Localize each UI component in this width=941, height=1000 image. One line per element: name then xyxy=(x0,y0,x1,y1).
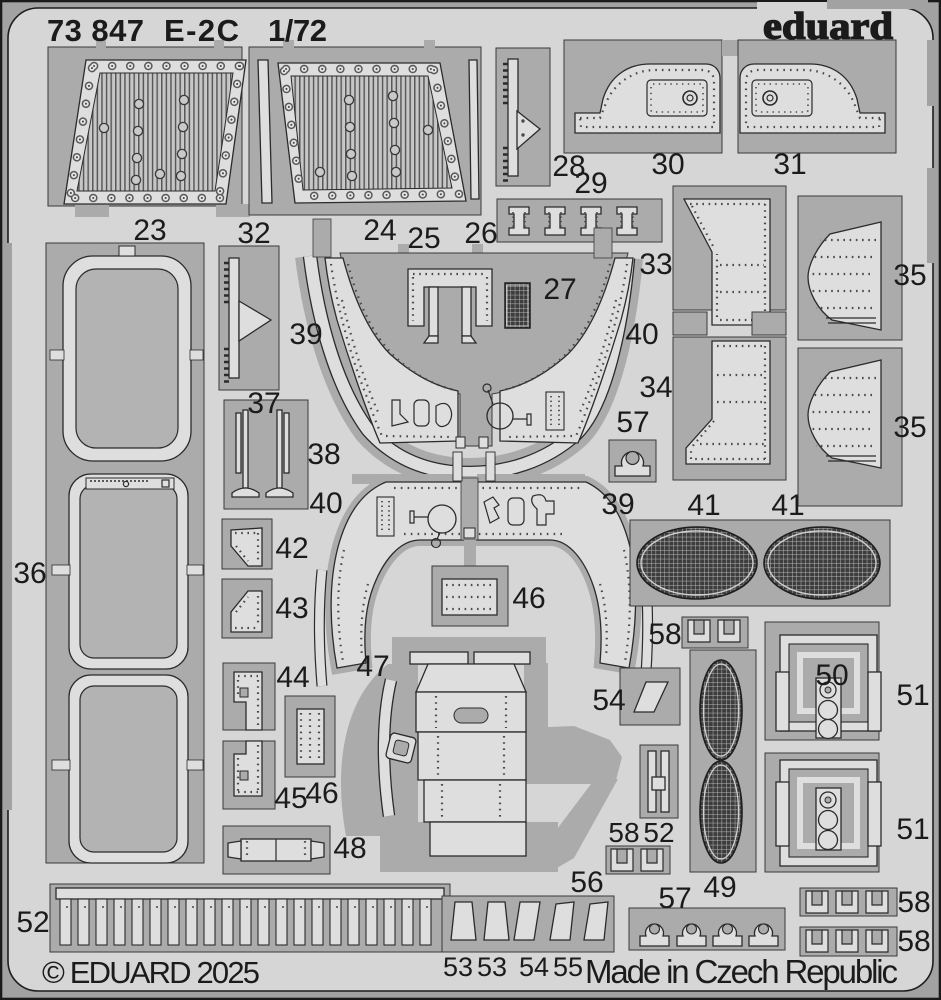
svg-text:33: 33 xyxy=(639,248,672,281)
svg-text:eduard: eduard xyxy=(763,6,893,48)
svg-text:32: 32 xyxy=(237,217,270,250)
svg-text:38: 38 xyxy=(307,438,340,471)
svg-text:56: 56 xyxy=(570,866,603,899)
svg-text:36: 36 xyxy=(13,557,46,590)
svg-text:48: 48 xyxy=(333,832,366,865)
svg-text:50: 50 xyxy=(815,659,848,692)
svg-text:42: 42 xyxy=(275,532,308,565)
svg-text:55: 55 xyxy=(553,952,583,982)
svg-text:51: 51 xyxy=(896,679,929,712)
svg-text:51: 51 xyxy=(896,813,929,846)
svg-text:52: 52 xyxy=(16,906,49,939)
svg-text:58: 58 xyxy=(897,886,930,919)
svg-text:Made in Czech Republic: Made in Czech Republic xyxy=(585,953,898,990)
svg-text:57: 57 xyxy=(658,882,691,915)
svg-text:29: 29 xyxy=(574,167,607,200)
svg-text:57: 57 xyxy=(616,406,649,439)
svg-text:58: 58 xyxy=(648,618,681,651)
svg-text:47: 47 xyxy=(356,650,389,683)
svg-text:41: 41 xyxy=(771,489,804,522)
svg-text:58: 58 xyxy=(897,925,930,958)
svg-text:26: 26 xyxy=(464,217,497,250)
svg-text:53: 53 xyxy=(477,952,507,982)
svg-text:35: 35 xyxy=(893,411,926,444)
svg-text:E-2C: E-2C xyxy=(164,13,239,48)
svg-text:35: 35 xyxy=(893,259,926,292)
svg-text:24: 24 xyxy=(363,214,396,247)
svg-text:40: 40 xyxy=(309,487,342,520)
svg-text:41: 41 xyxy=(687,489,720,522)
svg-text:49: 49 xyxy=(703,871,736,904)
svg-text:46: 46 xyxy=(305,777,338,810)
svg-text:46: 46 xyxy=(512,582,545,615)
svg-text:30: 30 xyxy=(651,148,684,181)
svg-text:54: 54 xyxy=(519,952,549,982)
svg-text:37: 37 xyxy=(247,387,280,420)
svg-text:25: 25 xyxy=(407,222,440,255)
svg-text:53: 53 xyxy=(443,952,473,982)
svg-text:52: 52 xyxy=(643,817,674,848)
svg-text:27: 27 xyxy=(543,273,576,306)
svg-text:43: 43 xyxy=(275,592,308,625)
svg-text:45: 45 xyxy=(274,782,307,815)
svg-text:1/72: 1/72 xyxy=(268,13,327,48)
svg-text:23: 23 xyxy=(133,214,166,247)
svg-text:73 847: 73 847 xyxy=(47,13,144,48)
svg-text:34: 34 xyxy=(639,371,672,404)
svg-text:39: 39 xyxy=(601,488,634,521)
svg-text:58: 58 xyxy=(608,817,639,848)
svg-text:31: 31 xyxy=(773,148,806,181)
svg-text:54: 54 xyxy=(592,684,625,717)
svg-text:40: 40 xyxy=(625,318,658,351)
svg-text:44: 44 xyxy=(276,661,309,694)
svg-text:39: 39 xyxy=(289,318,322,351)
svg-text:© EDUARD 2025: © EDUARD 2025 xyxy=(42,955,260,990)
